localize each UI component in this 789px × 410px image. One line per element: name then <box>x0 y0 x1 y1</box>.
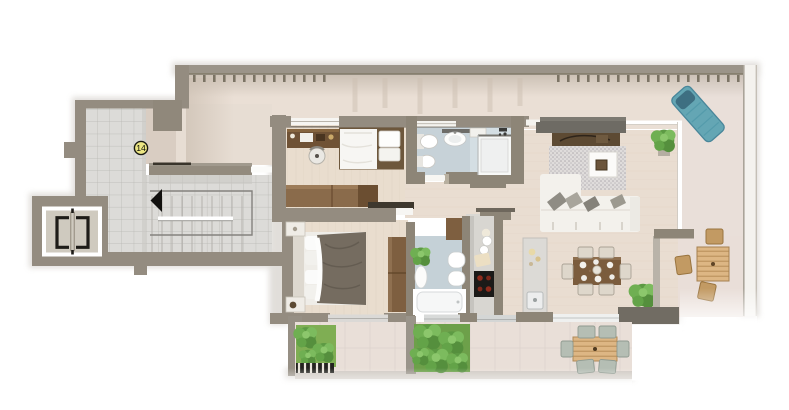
svg-text:14: 14 <box>136 143 146 153</box>
